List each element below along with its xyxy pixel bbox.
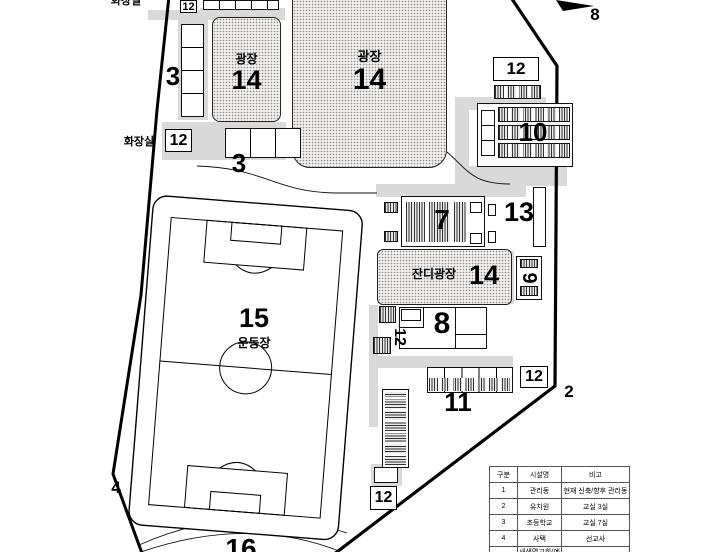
site-plan: 12 3 12 3 화장실 화장실 광장 14 광장 14 12 10 7 13… [0,0,720,552]
legend-cell: 선교사 [562,531,630,547]
building-7-stripes [454,202,466,242]
box-12-topleft: 12 [180,0,197,13]
legend-cell: 4 [490,531,518,547]
building-vertical-units [385,392,406,465]
label-lawn-name: 잔디광장 [402,268,466,280]
label-plaza-big-num: 14 [292,65,447,95]
legend-cell: 평상시 겸 다목적홀 [562,547,630,552]
label-lawn-num: 14 [466,262,502,289]
legend-row: 4 사택 선교사 [490,531,630,547]
legend-row: 5 새생명교회(예배당) 평상시 겸 다목적홀 [490,547,630,552]
box-12-bottom: 12 [370,486,397,510]
label-3-upper: 3 [162,63,184,89]
building-7-room [470,233,482,244]
legend-cell: 관리동 [518,483,562,499]
label-8-building: 8 [426,309,458,339]
legend-table: 구분 시설명 비고 1 관리동 현재 신축/향후 관리동 2 유치원 교실 3실… [489,466,630,552]
legend-cell: 5 [490,547,518,552]
legend-row: 3 초등학교 교실 7실 [490,515,630,531]
label-4: 4 [106,479,126,496]
building-7-stripes [406,202,425,242]
building-units-small [494,85,541,99]
label-11: 11 [441,389,475,415]
legend-cell: 교실 7실 [562,515,630,531]
road-curve [197,166,377,193]
small-room [488,204,496,216]
annex-unit [384,231,398,242]
legend-cell: 유치원 [518,499,562,515]
label-12-rotated: 12 [391,327,407,347]
label-16: 16 [220,535,262,552]
label-plaza-small-num: 14 [212,67,281,94]
label-2: 2 [559,383,579,400]
box-12-right: 12 [520,366,548,388]
building-8-room [401,309,421,321]
legend-cell: 사택 [518,531,562,547]
legend-header-row: 구분 시설명 비고 [490,467,630,483]
label-13: 13 [502,199,536,226]
legend-header-cell: 구분 [490,467,518,483]
box-12-topright: 12 [493,57,539,81]
legend-cell: 교실 3실 [562,499,630,515]
legend-cell: 새생명교회(예배당) [518,547,562,552]
label-field-name: 운동장 [228,337,280,349]
small-room [488,231,496,243]
label-toilet-left: 화장실 [117,137,161,148]
label-toilet-top: 화장실 [104,0,148,7]
legend-cell: 초등학교 [518,515,562,531]
label-plaza-big-name: 광장 [292,50,447,63]
building-10-room [481,110,495,156]
label-9: 9 [519,267,539,289]
building-row-top [203,0,279,10]
annex-unit [373,337,391,354]
legend-cell: 1 [490,483,518,499]
label-15: 15 [236,305,272,332]
box-12-left: 12 [165,129,192,152]
legend-row: 2 유치원 교실 3실 [490,499,630,515]
sports-field [127,194,364,542]
legend-header-cell: 시설명 [518,467,562,483]
building-8-wall [455,334,487,335]
building-7-room [470,202,482,213]
legend-cell: 현재 신축/향후 관리동 [562,483,630,499]
legend-cell: 3 [490,515,518,531]
small-room [374,467,398,483]
label-8-arrow: 8 [586,6,604,23]
label-plaza-small-name: 광장 [212,53,281,65]
label-10: 10 [513,119,553,145]
building-column-left [181,24,204,117]
building-8-wall [423,307,424,328]
legend-cell: 2 [490,499,518,515]
annex-unit [384,202,398,213]
legend-header-cell: 비고 [562,467,630,483]
label-7: 7 [430,206,454,234]
annex-unit [379,306,396,323]
legend-row: 1 관리동 현재 신축/향후 관리동 [490,483,630,499]
label-3-lower: 3 [228,150,250,176]
